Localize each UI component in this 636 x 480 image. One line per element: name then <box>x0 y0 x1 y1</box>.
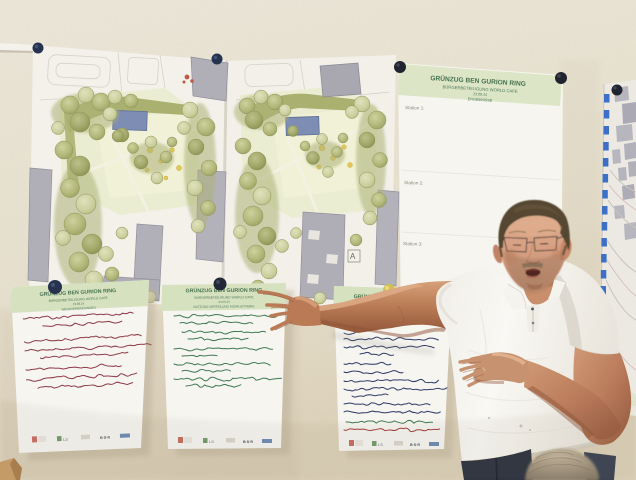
svg-text:Station 2:: Station 2: <box>404 180 424 186</box>
svg-text:23.09.24: 23.09.24 <box>218 300 230 304</box>
svg-text:NUTZUNG VERTEILUNG KONFLIKTVER: NUTZUNG VERTEILUNG KONFLIKTVERM. <box>193 304 255 309</box>
svg-text:Station 1:: Station 1: <box>405 105 425 111</box>
svg-text:A: A <box>350 252 356 261</box>
svg-text:23.09.24: 23.09.24 <box>473 92 487 97</box>
svg-text:Station 3:: Station 3: <box>403 241 423 247</box>
